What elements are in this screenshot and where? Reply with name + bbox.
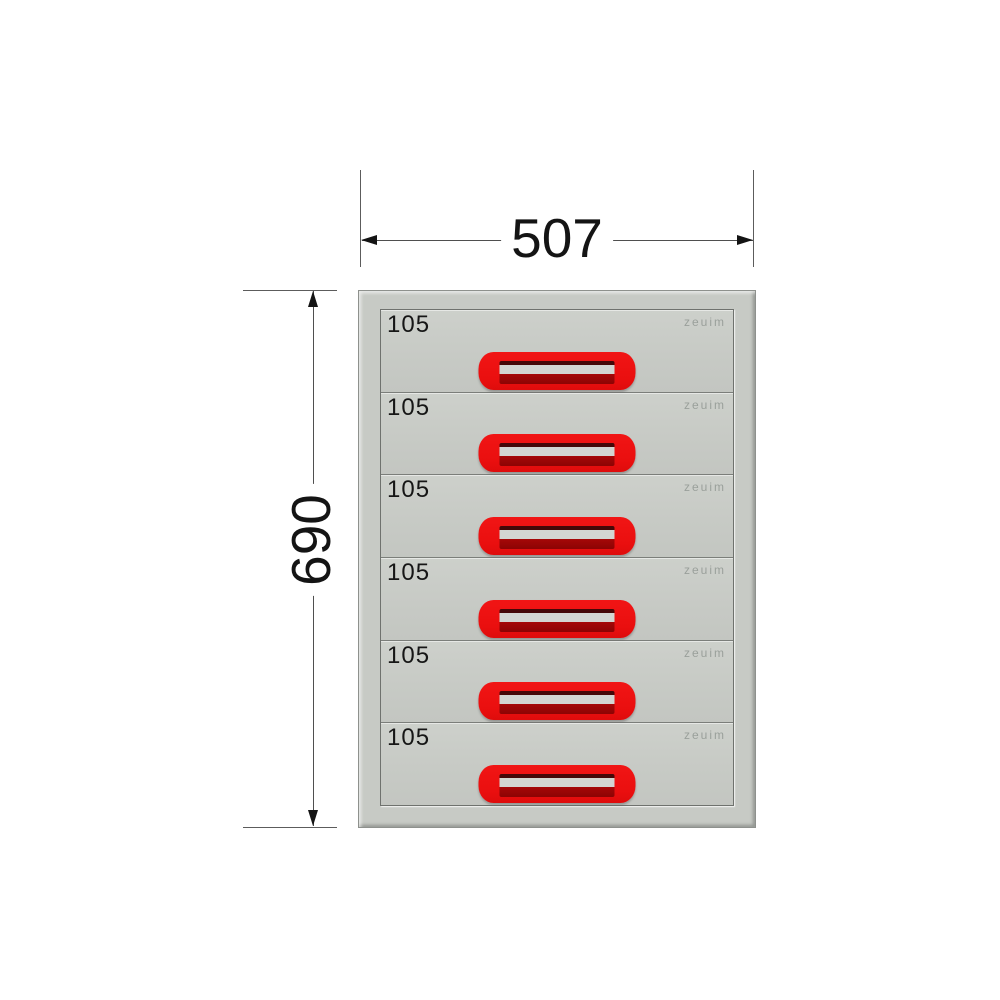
drawer-height-label: 105	[387, 476, 430, 504]
drawer-5: 105 zeuim	[381, 641, 733, 724]
handle-recess	[500, 361, 615, 384]
drawer-handle	[479, 765, 636, 803]
drawer-handle	[479, 600, 636, 638]
dimension-diagram: 507 690 105 zeuim 105 zeuim	[0, 0, 1000, 1000]
height-dim-extension-line-bottom	[243, 827, 337, 828]
drawer-height-label: 105	[387, 724, 430, 752]
drawer-handle	[479, 352, 636, 390]
drawer-1: 105 zeuim	[381, 310, 733, 393]
handle-slot	[500, 365, 615, 374]
cabinet-body: 105 zeuim 105 zeuim	[358, 290, 756, 828]
width-dim-extension-line-right	[753, 170, 754, 267]
handle-recess-bottom	[500, 704, 615, 714]
brand-logo-text: zeuim	[684, 398, 726, 412]
drawer-6: 105 zeuim	[381, 723, 733, 805]
handle-recess-bottom	[500, 622, 615, 632]
width-dim-arrow-left-icon	[361, 235, 377, 245]
width-dim-extension-line-left	[360, 170, 361, 267]
drawer-handle	[479, 517, 636, 555]
handle-slot	[500, 447, 615, 456]
handle-recess-bottom	[500, 539, 615, 549]
drawer-height-label: 105	[387, 311, 430, 339]
brand-logo-text: zeuim	[684, 480, 726, 494]
handle-slot	[500, 530, 615, 539]
height-dim-arrow-up-icon	[308, 291, 318, 307]
handle-recess	[500, 774, 615, 797]
height-dim-extension-line-top	[243, 290, 337, 291]
handle-recess-bottom	[500, 787, 615, 797]
handle-slot	[500, 695, 615, 704]
handle-recess-bottom	[500, 374, 615, 384]
brand-logo-text: zeuim	[684, 315, 726, 329]
brand-logo-text: zeuim	[684, 646, 726, 660]
handle-recess	[500, 443, 615, 466]
drawer-handle	[479, 434, 636, 472]
drawer-stack: 105 zeuim 105 zeuim	[380, 309, 734, 806]
drawer-height-label: 105	[387, 559, 430, 587]
drawer-height-label: 105	[387, 394, 430, 422]
drawer-4: 105 zeuim	[381, 558, 733, 641]
brand-logo-text: zeuim	[684, 563, 726, 577]
drawer-2: 105 zeuim	[381, 393, 733, 476]
width-dimension-label: 507	[501, 210, 613, 268]
handle-recess	[500, 526, 615, 549]
handle-recess	[500, 609, 615, 632]
height-dim-arrow-down-icon	[308, 810, 318, 826]
drawer-handle	[479, 682, 636, 720]
handle-slot	[500, 778, 615, 787]
height-dimension-label: 690	[283, 484, 341, 596]
drawer-height-label: 105	[387, 642, 430, 670]
handle-slot	[500, 613, 615, 622]
brand-logo-text: zeuim	[684, 728, 726, 742]
handle-recess	[500, 691, 615, 714]
drawer-3: 105 zeuim	[381, 475, 733, 558]
width-dim-arrow-right-icon	[737, 235, 753, 245]
handle-recess-bottom	[500, 456, 615, 466]
